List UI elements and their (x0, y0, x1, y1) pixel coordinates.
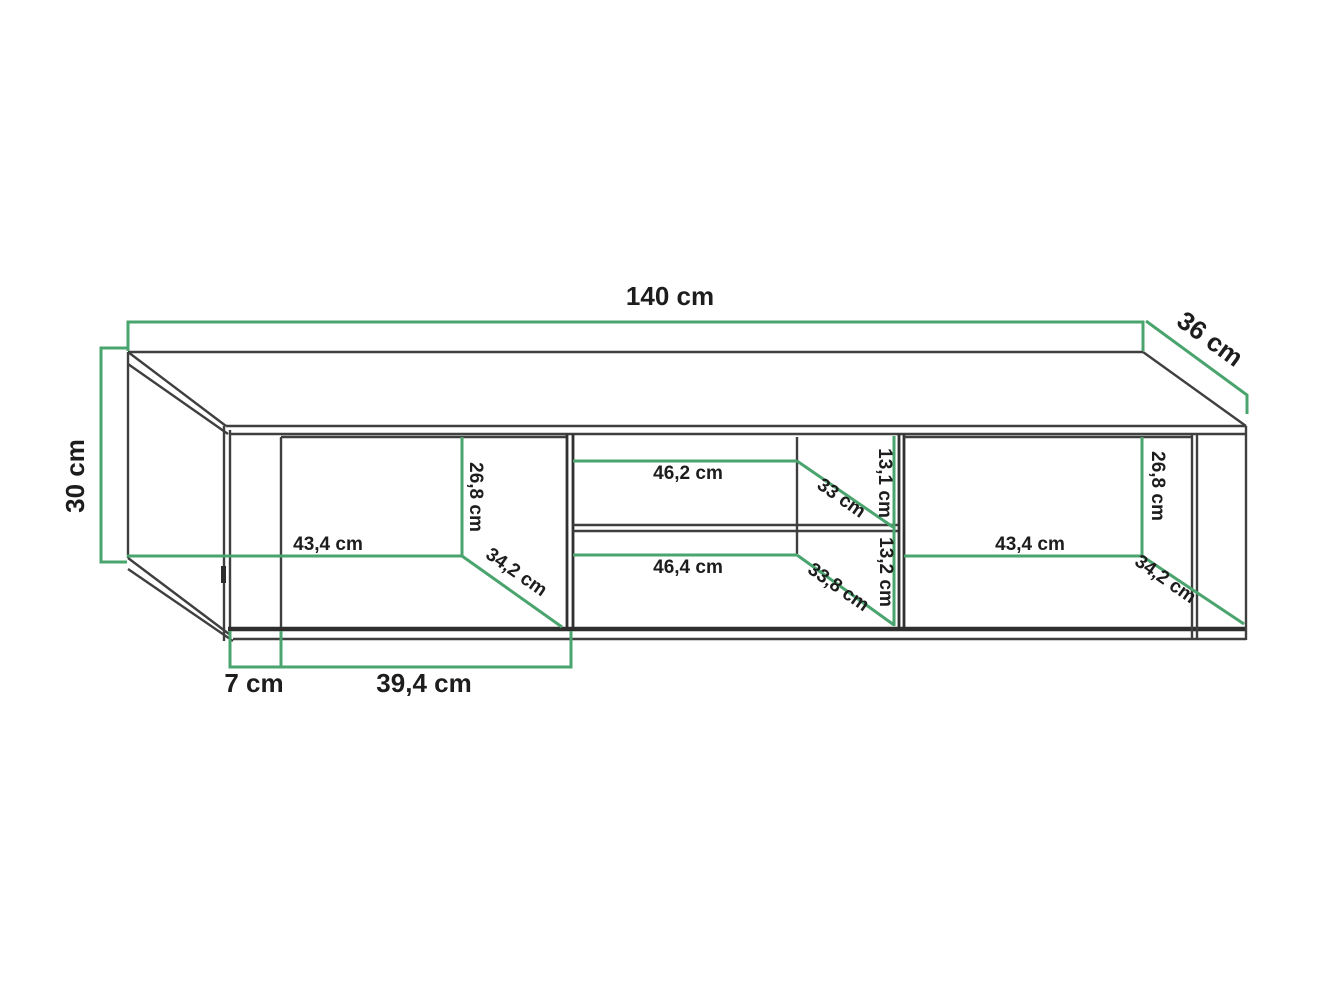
door-handle-mark (221, 566, 226, 583)
base-door-width-label: 39,4 cm (376, 668, 471, 698)
middle-upper-height-label: 13,1 cm (874, 448, 895, 518)
right-opening-width-label: 43,4 cm (995, 534, 1065, 555)
diagram-background (0, 0, 1320, 990)
overall-width-label: 140 cm (626, 281, 714, 311)
left-opening-width-label: 43,4 cm (293, 534, 363, 555)
middle-lower-width-label: 46,4 cm (653, 557, 723, 578)
right-opening-height-label: 26,8 cm (1147, 451, 1168, 521)
middle-upper-width-label: 46,2 cm (653, 463, 723, 484)
left-opening-height-label: 26,8 cm (465, 462, 486, 532)
base-side-width-label: 7 cm (224, 668, 283, 698)
overall-height-label: 30 cm (60, 439, 90, 513)
middle-lower-height-label: 13,2 cm (875, 537, 896, 607)
diagram-canvas: 140 cm 36 cm 30 cm 26,8 cm 43,4 cm 34,2 … (0, 0, 1320, 990)
furniture-dimension-diagram: 140 cm 36 cm 30 cm 26,8 cm 43,4 cm 34,2 … (0, 0, 1320, 990)
